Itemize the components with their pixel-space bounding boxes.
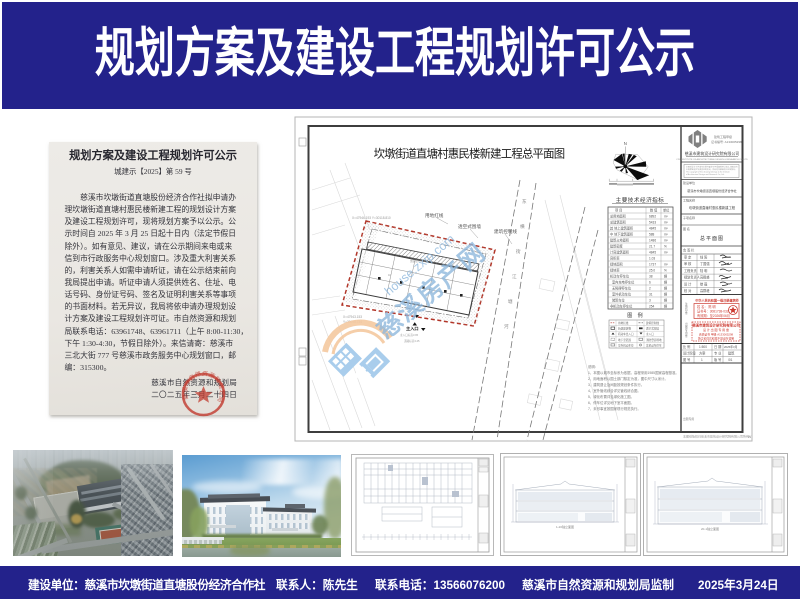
svg-text:建筑工程甲级: 建筑工程甲级: [714, 134, 732, 139]
svg-text:审 核: 审 核: [684, 261, 692, 266]
svg-text:数 值: 数 值: [650, 208, 658, 213]
svg-text:出图专用章: 出图专用章: [685, 322, 688, 338]
svg-text:1-20轴立面图: 1-20轴立面图: [556, 524, 574, 529]
svg-text:道路标高3.45: 道路标高3.45: [404, 339, 420, 343]
svg-text:m²: m²: [664, 221, 668, 225]
svg-text:总用地面积: 总用地面积: [610, 214, 627, 219]
svg-text:1.03: 1.03: [649, 257, 655, 261]
svg-text:比 例: 比 例: [683, 344, 690, 349]
svg-text:坎墩街道直塘村惠民楼新建工程: 坎墩街道直塘村惠民楼新建工程: [689, 205, 736, 210]
svg-text:2025年3月: 2025年3月: [724, 345, 738, 349]
svg-text:浙江省住房和城乡建设厅监制: 浙江省住房和城乡建设厅监制: [698, 337, 735, 341]
svg-text:日 期: 日 期: [714, 344, 721, 349]
svg-text:规划负责人: 规划负责人: [684, 275, 701, 280]
svg-text:1:500: 1:500: [699, 345, 707, 349]
svg-text:校 对: 校 对: [684, 288, 692, 293]
svg-text:%: %: [664, 269, 667, 273]
svg-text:新建建筑物: 新建建筑物: [618, 327, 631, 331]
svg-text:慈溪市建筑设计研究院有限公司: 慈溪市建筑设计研究院有限公司: [685, 151, 740, 156]
svg-text:6: 6: [649, 281, 651, 285]
svg-text:CIXI INSTITUTE OF ARCHITECTURA: CIXI INSTITUTE OF ARCHITECTURAL DESIGN &…: [676, 158, 748, 161]
svg-text:588: 588: [649, 233, 655, 237]
svg-text:用地红线: 用地红线: [425, 212, 444, 219]
svg-text:6、停车位详见地下室平面图。: 6、停车位详见地下室平面图。: [588, 400, 634, 405]
svg-text:图 名: 图 名: [683, 226, 690, 231]
svg-text:机动车出入口: 机动车出入口: [618, 332, 634, 336]
svg-text:方案: 方案: [699, 351, 706, 356]
svg-text:1、本图以城市坐标系为依据，高程采用1985国家高程基准。: 1、本图以城市坐标系为依据，高程采用1985国家高程基准。: [588, 370, 679, 375]
svg-text:m²: m²: [664, 227, 668, 231]
svg-text:254: 254: [649, 305, 655, 309]
svg-text:证书编号: A133005298: 证书编号: A133005298: [711, 139, 742, 144]
svg-text:7、未尽事宜按国家现行规范执行。: 7、未尽事宜按国家现行规范执行。: [588, 406, 641, 411]
svg-text:主入口: 主入口: [646, 332, 654, 336]
svg-text:版 号: 版 号: [714, 357, 721, 362]
svg-text:建筑控制线: 建筑控制线: [646, 321, 659, 325]
svg-text:专 业: 专 业: [714, 351, 721, 356]
svg-text:透空式围墙: 透空式围墙: [458, 223, 481, 230]
svg-text:慈溪市坎墩街道直塘股份经济合作社: 慈溪市坎墩街道直塘股份经济合作社: [687, 188, 737, 193]
svg-text:慈溪市建筑设计研究院有限公司: 慈溪市建筑设计研究院有限公司: [692, 323, 740, 328]
svg-text:建设单位: 建设单位: [683, 180, 695, 185]
svg-text:建筑: 建筑: [728, 351, 735, 356]
svg-text:钱 阳: 钱 阳: [700, 255, 707, 260]
svg-text:/01: /01: [728, 358, 733, 362]
svg-text:3、建筑退让及间距按规划条件执行。: 3、建筑退让及间距按规划条件执行。: [588, 382, 644, 387]
svg-text:主要技术经济指标: 主要技术经济指标: [616, 196, 665, 204]
svg-text:本图纸版权归慈溪市建筑设计研究院有限公司所有: 本图纸版权归慈溪市建筑设计研究院有限公司所有: [683, 434, 749, 439]
svg-text:总平面图: 总平面图: [700, 235, 724, 242]
svg-text:4845: 4845: [649, 227, 656, 231]
svg-text:街: 街: [516, 248, 521, 255]
svg-text:出图专用: 出图专用: [683, 417, 694, 421]
svg-text:设 计 出 图 专 用 章: 设 计 出 图 专 用 章: [703, 327, 729, 332]
svg-text:室内充电停车位: 室内充电停车位: [612, 280, 635, 285]
svg-text:塘: 塘: [508, 298, 513, 305]
svg-text:38: 38: [649, 275, 653, 279]
svg-text:非机动车停车: 非机动车停车: [646, 343, 662, 347]
svg-text:1F: 1F: [388, 273, 391, 277]
svg-text:室外机动车位: 室外机动车位: [612, 292, 632, 297]
svg-text:坎墩街道直塘村惠民楼新建工程总平面图: 坎墩街道直塘村惠民楼新建工程总平面图: [374, 147, 565, 161]
svg-text:20-1轴立面图: 20-1轴立面图: [701, 526, 719, 531]
svg-text:5、绿化布置详见绿化施工图。: 5、绿化布置详见绿化施工图。: [588, 394, 634, 399]
svg-text:1: 1: [701, 358, 703, 362]
svg-text:X=47946.193 Y=30118.810: X=47946.193 Y=30118.810: [352, 216, 391, 220]
svg-text:21.7: 21.7: [649, 245, 655, 249]
svg-text:透空式围墙: 透空式围墙: [646, 327, 659, 331]
svg-text:4845: 4845: [649, 251, 656, 255]
svg-text:绿地率: 绿地率: [610, 268, 620, 273]
svg-text:东: 东: [522, 198, 527, 204]
svg-text:用地红线: 用地红线: [618, 321, 629, 325]
svg-text:工程名称: 工程名称: [683, 198, 695, 203]
svg-text:2: 2: [649, 287, 651, 291]
svg-text:机动车停车位: 机动车停车位: [610, 274, 630, 279]
svg-text:of Architectural Design and Re: of Architectural Design and Research Co.…: [686, 173, 725, 176]
svg-text:横: 横: [520, 223, 525, 230]
svg-text:容积率: 容积率: [610, 256, 620, 261]
svg-text:证书号：3081738-032: 证书号：3081738-032: [697, 309, 729, 314]
svg-text:总建筑面积: 总建筑面积: [610, 220, 627, 225]
svg-text:建筑密度: 建筑密度: [610, 244, 624, 249]
svg-text:图 号: 图 号: [683, 357, 690, 362]
svg-text:设计阶段: 设计阶段: [683, 351, 697, 356]
svg-text:会 签 栏: 会 签 栏: [683, 248, 695, 253]
svg-text:陆 明: 陆 明: [700, 268, 707, 273]
svg-text:3: 3: [649, 299, 651, 303]
svg-text:6892: 6892: [649, 215, 656, 219]
svg-text:m²: m²: [664, 233, 668, 237]
svg-text:N: N: [624, 141, 627, 146]
svg-text:31: 31: [649, 293, 653, 297]
svg-text:审 定: 审 定: [684, 255, 692, 260]
svg-text:计容建筑面积: 计容建筑面积: [610, 250, 630, 255]
svg-text:注册印章: 注册印章: [685, 302, 688, 315]
svg-text:m²: m²: [664, 215, 668, 219]
svg-text:设 计: 设 计: [684, 281, 692, 286]
svg-text:单位: 单位: [663, 208, 670, 213]
svg-text:建筑控制线: 建筑控制线: [494, 228, 517, 235]
svg-text:有效期：至2026年06月: 有效期：至2026年06月: [697, 313, 730, 318]
svg-text:1486: 1486: [649, 239, 656, 243]
svg-text:子项名称: 子项名称: [683, 215, 695, 220]
svg-text:1737: 1737: [649, 263, 656, 267]
svg-text:25.0: 25.0: [649, 269, 655, 273]
svg-text:m²: m²: [664, 251, 668, 255]
svg-text:高群峰: 高群峰: [700, 275, 710, 280]
svg-text:中华人民共和国一级注册建筑师: 中华人民共和国一级注册建筑师: [695, 298, 738, 303]
svg-text:中 地下建筑面积: 中 地下建筑面积: [610, 232, 634, 237]
svg-text:4、室外管线综合详见管线综合图。: 4、室外管线综合详见管线综合图。: [588, 388, 641, 393]
svg-text:无障碍停车位: 无障碍停车位: [612, 286, 632, 291]
svg-text:5433: 5433: [649, 221, 656, 225]
svg-text:其 地上建筑面积: 其 地上建筑面积: [610, 226, 634, 231]
svg-text:消防登高场地: 消防登高场地: [646, 338, 662, 342]
svg-text:%: %: [664, 245, 667, 249]
svg-text:建筑占地面积: 建筑占地面积: [610, 238, 630, 243]
svg-text:室外机动车位: 室外机动车位: [618, 343, 634, 347]
svg-text:说明：: 说明：: [588, 364, 598, 369]
svg-text:2、用地面积以国土部门核定为准，图中尺寸以米计。: 2、用地面积以国土部门核定为准，图中尺寸以米计。: [588, 376, 668, 381]
svg-text:江: 江: [512, 273, 517, 280]
svg-text:图 例: 图 例: [627, 312, 644, 319]
svg-text:徐 巍: 徐 巍: [700, 281, 708, 286]
svg-text:绿地面积: 绿地面积: [610, 262, 624, 267]
svg-text:丁国强: 丁国强: [700, 261, 710, 266]
svg-text:河: 河: [504, 323, 509, 329]
svg-text:工程负责: 工程负责: [684, 268, 697, 273]
svg-text:m²: m²: [664, 239, 668, 243]
svg-text:X=47943.153: X=47943.153: [343, 315, 362, 319]
svg-text:高群峰: 高群峰: [700, 288, 710, 293]
svg-text:装卸车位: 装卸车位: [612, 298, 626, 303]
svg-text:地下室范围: 地下室范围: [618, 338, 631, 342]
svg-text:项 目: 项 目: [615, 209, 622, 213]
svg-text:m²: m²: [664, 263, 668, 267]
svg-text:姓 名： 陈 明: 姓 名： 陈 明: [697, 304, 716, 309]
svg-text:非机动车停车位: 非机动车停车位: [610, 304, 633, 309]
